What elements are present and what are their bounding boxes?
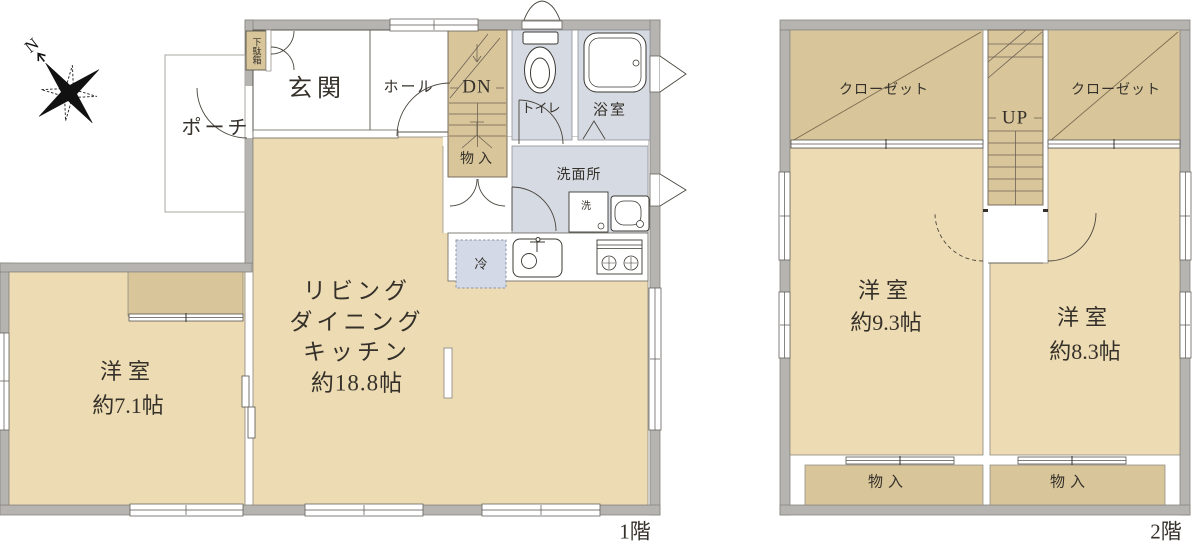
floorplan-page: N ポーチ 玄関 ホール 下駄箱 DN 物入 トイレ 浴室 洗面所 洗 冷 リビ… (0, 0, 1200, 558)
floorplan-canvas: N (0, 0, 1200, 558)
exterior-door-washroom (660, 174, 686, 206)
sink-faucet-head (536, 238, 540, 242)
window (522, 21, 562, 29)
label-hall: ホール (383, 81, 434, 96)
label-bedroom2f-right-name: 洋室 (1057, 307, 1113, 329)
label-toilet: トイレ (521, 102, 560, 115)
wall-stub (444, 348, 452, 398)
label-ldk-line1: リビング (303, 280, 411, 303)
label-ldk-size: 約18.8帖 (311, 372, 403, 395)
label-ldk-line2: ダイニング (290, 311, 425, 334)
door-jamb (983, 209, 988, 212)
sink-drain (522, 254, 537, 269)
door-frame (266, 30, 271, 71)
door-opening (650, 174, 660, 206)
wall-thin (253, 130, 398, 138)
compass-icon: N (0, 13, 125, 148)
door-opening (650, 56, 660, 92)
label-ldk-line3: キッチン (303, 341, 411, 364)
label-under-stairs-storage: 物入 (460, 153, 496, 167)
sliding-door (248, 407, 255, 438)
label-floor2: 2階 (1150, 522, 1182, 543)
toilet-tank-icon (523, 32, 558, 44)
label-fridge: 冷 (474, 258, 487, 271)
wall (650, 20, 660, 515)
label-washroom: 洗面所 (557, 169, 602, 183)
label-stairs-dn: DN (462, 78, 491, 97)
label-bedroom1f-size: 約7.1帖 (92, 395, 164, 417)
label-closet-right: クローゼット (1071, 84, 1161, 98)
label-bedroom1f-name: 洋室 (100, 361, 156, 383)
wall (780, 505, 1190, 515)
toilet-bowl-inner (531, 58, 550, 88)
label-floor1: 1階 (619, 522, 651, 543)
wall (0, 263, 252, 272)
label-shoe-cabinet: 下駄箱 (252, 38, 261, 65)
label-stairs-up: UP (1002, 109, 1028, 128)
label-bedroom2f-right-size: 約8.3帖 (1049, 341, 1121, 363)
wall (1180, 30, 1190, 515)
sliding-door (242, 376, 249, 407)
label-storage-left: 物入 (868, 476, 908, 491)
label-washer: 洗 (581, 202, 591, 212)
label-bedroom2f-left-name: 洋室 (858, 280, 914, 302)
label-storage-right: 物入 (1050, 476, 1090, 491)
exterior-door-bath (660, 56, 686, 92)
wall (780, 30, 790, 515)
label-entrance: 玄関 (288, 77, 346, 101)
label-bedroom2f-left-size: 約9.3帖 (850, 312, 922, 334)
washer-knob (598, 223, 604, 229)
label-bath: 浴室 (593, 104, 627, 119)
casement-window-arc (524, 1, 560, 20)
window (0, 333, 9, 430)
closet-1f (128, 272, 243, 316)
vanity-faucet (637, 221, 644, 228)
label-porch: ポーチ (182, 118, 251, 138)
label-closet-left: クローゼット (839, 84, 929, 98)
wall (780, 20, 1190, 30)
bathtub-drain (633, 60, 639, 66)
door-jamb (1043, 209, 1048, 212)
